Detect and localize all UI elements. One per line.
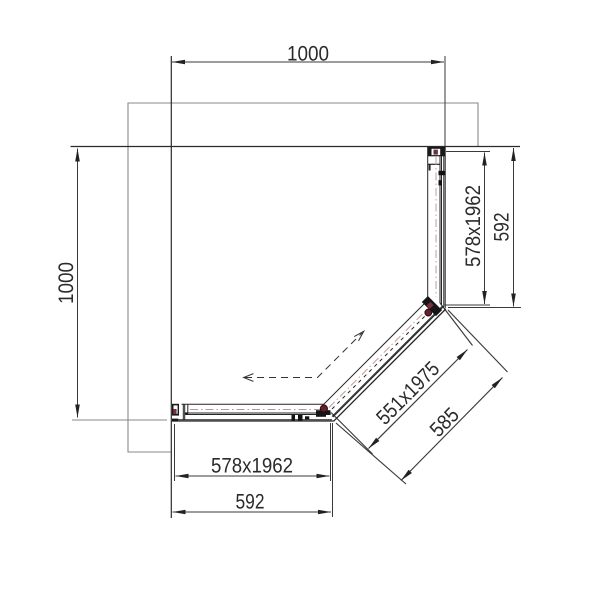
svg-text:578x1962: 578x1962 xyxy=(462,185,485,267)
svg-text:578x1962: 578x1962 xyxy=(211,455,293,478)
svg-text:592: 592 xyxy=(236,491,265,514)
svg-text:592: 592 xyxy=(491,213,514,242)
svg-text:1000: 1000 xyxy=(55,262,78,304)
svg-text:1000: 1000 xyxy=(287,43,329,66)
